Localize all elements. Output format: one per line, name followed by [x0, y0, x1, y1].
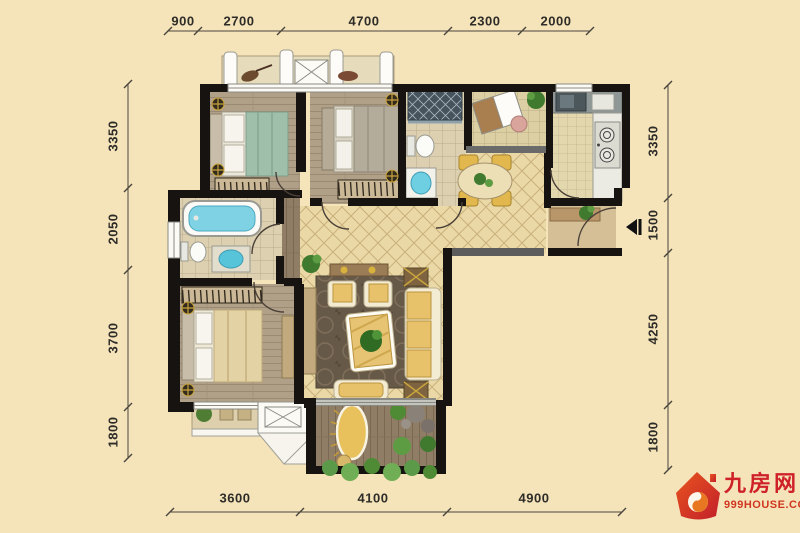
logo-brand-name: 九房网: [724, 472, 800, 496]
dim-bottom-2: 4100: [358, 491, 389, 506]
sink-icon: [212, 246, 250, 272]
armchair-icon: [364, 281, 392, 307]
dim-left-3: 3700: [106, 323, 121, 354]
bed-icon: [322, 106, 400, 172]
dim-right-3: 4250: [646, 314, 661, 345]
dim-top-5: 2000: [541, 14, 572, 29]
flower-box: [258, 402, 308, 464]
entry-arrow-icon: [626, 219, 642, 235]
console-table-icon: [330, 264, 388, 276]
toilet-icon: [407, 135, 434, 157]
dim-top-1: 900: [171, 14, 194, 29]
cabinet-icon: [282, 316, 294, 378]
shower-icon: [408, 91, 462, 120]
dim-right-2: 1500: [646, 210, 661, 241]
balcony-slider: [316, 398, 436, 406]
sink-icon: [406, 168, 436, 198]
dim-bottom-1: 3600: [220, 491, 251, 506]
living-room-furniture: [302, 255, 441, 401]
plant-icon: [474, 173, 486, 185]
entrance-furniture: [550, 206, 600, 222]
dim-bottom-3: 4900: [519, 491, 550, 506]
cushion-icon: [338, 71, 358, 81]
dining-furniture: [458, 155, 512, 206]
stove-icon: [595, 122, 620, 168]
bathtub-icon: [183, 201, 261, 236]
tv-cabinet-icon: [302, 288, 316, 374]
dim-left-2: 2050: [106, 214, 121, 245]
corridor-floor: [282, 198, 300, 280]
toilet-icon: [181, 242, 206, 262]
sofa-icon: [405, 288, 441, 380]
floorplan-page: 900 2700 4700 2300 2000 3350 2050 3700 1…: [0, 0, 800, 533]
bed-icon: [182, 310, 262, 382]
dim-right-4: 1800: [646, 422, 661, 453]
dim-left-4: 1800: [106, 417, 121, 448]
site-logo: 九房网 999HOUSE.COM: [724, 472, 800, 511]
dim-left-1: 3350: [106, 121, 121, 152]
logo-domain: 999HOUSE.COM: [724, 499, 800, 511]
dim-top-2: 2700: [224, 14, 255, 29]
wardrobe-icon: [338, 180, 402, 199]
ottoman-icon: [334, 380, 388, 400]
house-logo-icon: [676, 472, 720, 520]
stool-icon: [511, 116, 527, 132]
wardrobe-icon: [182, 287, 262, 303]
dim-top-3: 4700: [349, 14, 380, 29]
floorplan-image: [0, 0, 800, 533]
kitchen-sink-icon: [556, 92, 586, 111]
dim-top-4: 2300: [470, 14, 501, 29]
dim-right-1: 3350: [646, 126, 661, 157]
armchair-icon: [328, 281, 356, 307]
